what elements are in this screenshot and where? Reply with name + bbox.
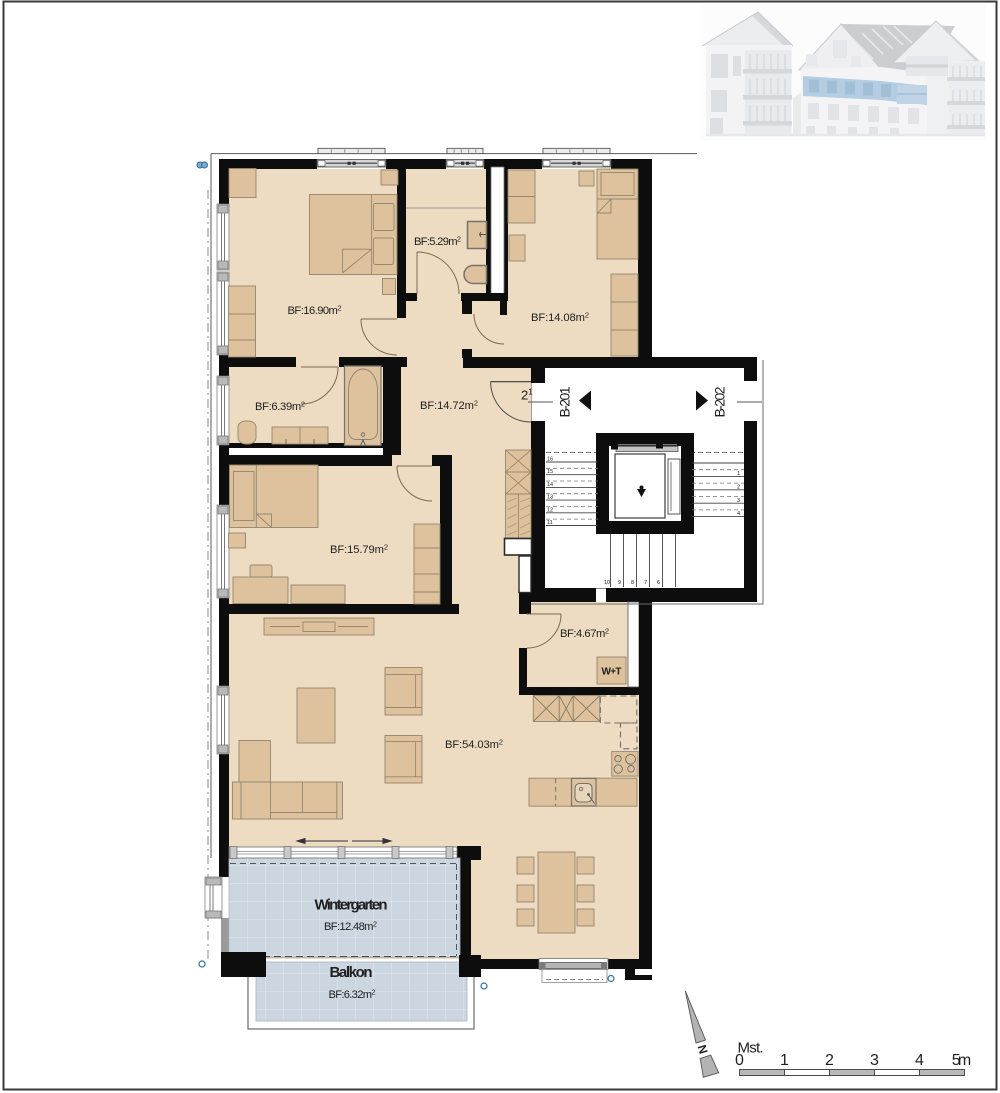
svg-text:BF:15.79m2: BF:15.79m2 (330, 543, 388, 557)
svg-text:7: 7 (644, 580, 647, 586)
svg-text:11: 11 (547, 520, 553, 526)
svg-text:W+T: W+T (602, 667, 622, 678)
svg-text:Wintergarten: Wintergarten (315, 897, 388, 914)
svg-text:BF:54.03m2: BF:54.03m2 (445, 738, 503, 752)
svg-text:BF:16.90m2: BF:16.90m2 (288, 304, 342, 318)
svg-text:3: 3 (870, 1052, 879, 1069)
svg-text:2: 2 (825, 1052, 834, 1069)
svg-text:14: 14 (547, 482, 553, 488)
svg-text:BF:14.08m2: BF:14.08m2 (531, 311, 589, 325)
svg-text:2: 2 (737, 484, 740, 490)
svg-text:3: 3 (737, 498, 740, 504)
svg-text:1: 1 (780, 1052, 789, 1069)
svg-text:BF:12.48m2: BF:12.48m2 (324, 920, 377, 934)
svg-text:12: 12 (547, 507, 553, 513)
svg-text:4: 4 (737, 511, 740, 517)
svg-text:15: 15 (547, 469, 553, 475)
svg-text:Balkon: Balkon (330, 964, 373, 981)
svg-text:10: 10 (604, 580, 610, 586)
svg-text:B-202: B-202 (712, 386, 728, 417)
svg-text:8: 8 (631, 580, 634, 586)
svg-text:0: 0 (735, 1052, 744, 1069)
svg-text:5m: 5m (952, 1052, 972, 1069)
svg-text:BF:5.29m2: BF:5.29m2 (414, 235, 461, 249)
svg-text:BF:14.72m2: BF:14.72m2 (420, 399, 478, 413)
svg-text:6: 6 (657, 580, 660, 586)
svg-text:16: 16 (547, 457, 553, 463)
svg-text:BF:4.67m2: BF:4.67m2 (560, 627, 609, 641)
svg-text:13: 13 (547, 495, 553, 501)
svg-text:1: 1 (737, 471, 740, 477)
svg-text:BF:6.32m2: BF:6.32m2 (329, 988, 376, 1002)
svg-text:9: 9 (618, 580, 621, 586)
svg-text:4: 4 (915, 1052, 924, 1069)
svg-text:B-201: B-201 (557, 386, 573, 417)
svg-text:BF:6.39m2: BF:6.39m2 (255, 400, 305, 414)
